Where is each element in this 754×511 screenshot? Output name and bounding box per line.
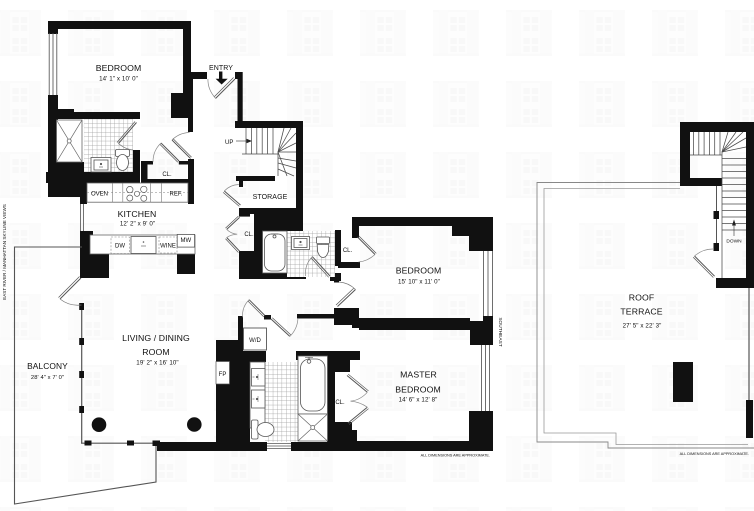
svg-text:MW: MW	[180, 238, 191, 244]
svg-text:ROOF: ROOF	[629, 293, 655, 303]
svg-text:DOWN: DOWN	[726, 239, 742, 245]
svg-text:BEDROOM: BEDROOM	[395, 385, 441, 395]
svg-text:BALCONY: BALCONY	[27, 361, 68, 371]
svg-text:WINE: WINE	[160, 244, 176, 250]
svg-text:OVEN: OVEN	[91, 191, 108, 197]
svg-text:14' 6" x 12' 8": 14' 6" x 12' 8"	[399, 397, 438, 404]
svg-text:ALL DIMENSIONS ARE APPROXIMATE: ALL DIMENSIONS ARE APPROXIMATE.	[680, 452, 749, 456]
svg-text:MASTER: MASTER	[400, 370, 437, 380]
svg-text:BEDROOM: BEDROOM	[396, 266, 442, 276]
svg-text:ALL DIMENSIONS ARE APPROXIMATE: ALL DIMENSIONS ARE APPROXIMATE.	[421, 454, 490, 458]
svg-text:TERRACE: TERRACE	[620, 307, 662, 317]
svg-text:27' 5" x 22' 3": 27' 5" x 22' 3"	[623, 323, 662, 330]
svg-text:EAST RIVER / MANHATTAN SKYLINE: EAST RIVER / MANHATTAN SKYLINE VIEWS	[2, 204, 7, 300]
svg-text:BEDROOM: BEDROOM	[96, 63, 142, 73]
svg-text:19' 2" x 16' 10": 19' 2" x 16' 10"	[136, 360, 178, 367]
svg-text:KITCHEN: KITCHEN	[118, 209, 157, 219]
svg-text:STORAGE: STORAGE	[253, 194, 288, 201]
svg-text:12' 2" x 9' 0": 12' 2" x 9' 0"	[120, 221, 155, 228]
svg-text:SOUTHEAST: SOUTHEAST	[497, 317, 503, 346]
svg-text:CL.: CL.	[244, 232, 254, 238]
svg-text:ENTRY: ENTRY	[209, 65, 233, 72]
svg-text:15' 10" x 11' 0": 15' 10" x 11' 0"	[398, 279, 440, 286]
svg-text:28' 4" x 7' 0": 28' 4" x 7' 0"	[31, 375, 64, 381]
svg-text:REF.: REF.	[169, 191, 182, 197]
svg-text:CL.: CL.	[162, 172, 172, 178]
svg-text:14' 1" x 10' 0": 14' 1" x 10' 0"	[99, 76, 138, 83]
svg-text:CL.: CL.	[335, 400, 345, 406]
svg-text:CL.: CL.	[343, 248, 353, 254]
svg-text:LIVING / DINING: LIVING / DINING	[122, 333, 190, 343]
svg-text:W/D: W/D	[249, 338, 261, 344]
svg-text:ROOM: ROOM	[142, 347, 169, 357]
svg-text:DW: DW	[115, 243, 125, 249]
svg-text:UP: UP	[225, 140, 233, 146]
svg-text:FP: FP	[219, 372, 227, 378]
